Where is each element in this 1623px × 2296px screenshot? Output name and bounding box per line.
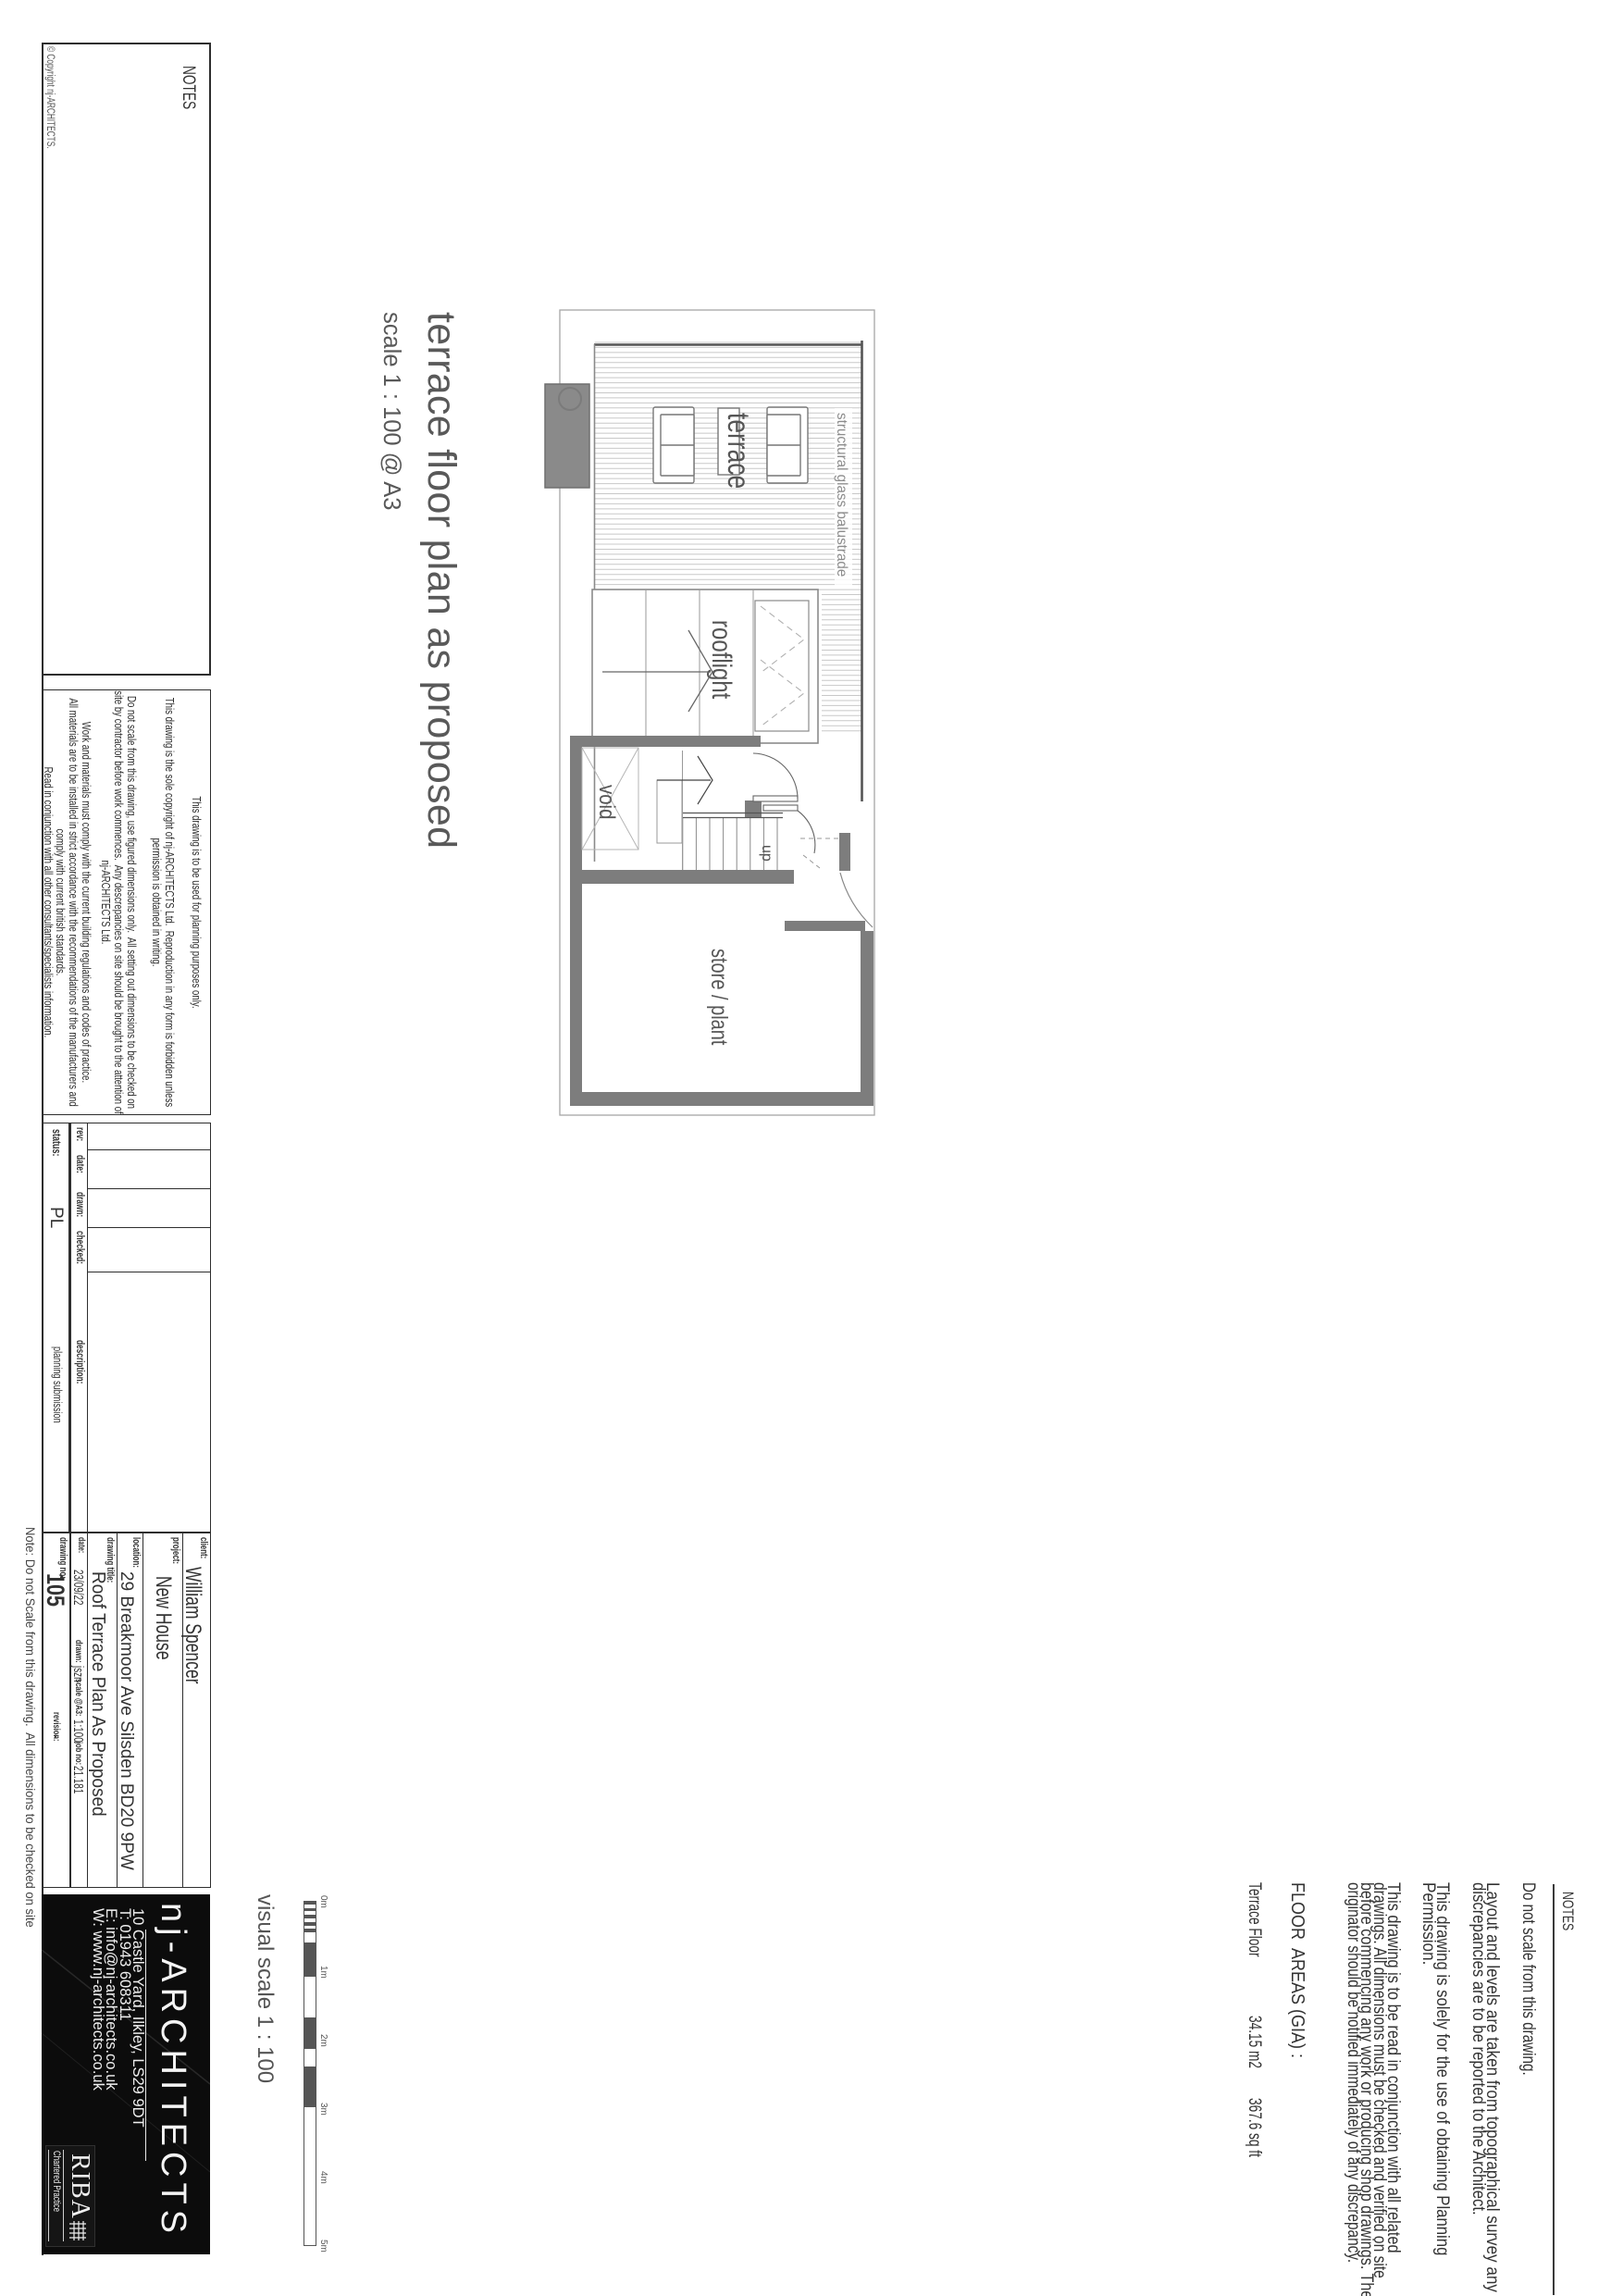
- svg-text:terrace: terrace: [721, 413, 754, 489]
- svg-text:rooflight: rooflight: [706, 620, 737, 700]
- svg-text:void: void: [595, 785, 620, 819]
- svg-text:up: up: [759, 845, 774, 862]
- svg-text:structural glass balustrade: structural glass balustrade: [834, 413, 849, 577]
- svg-text:store / plant: store / plant: [706, 949, 732, 1046]
